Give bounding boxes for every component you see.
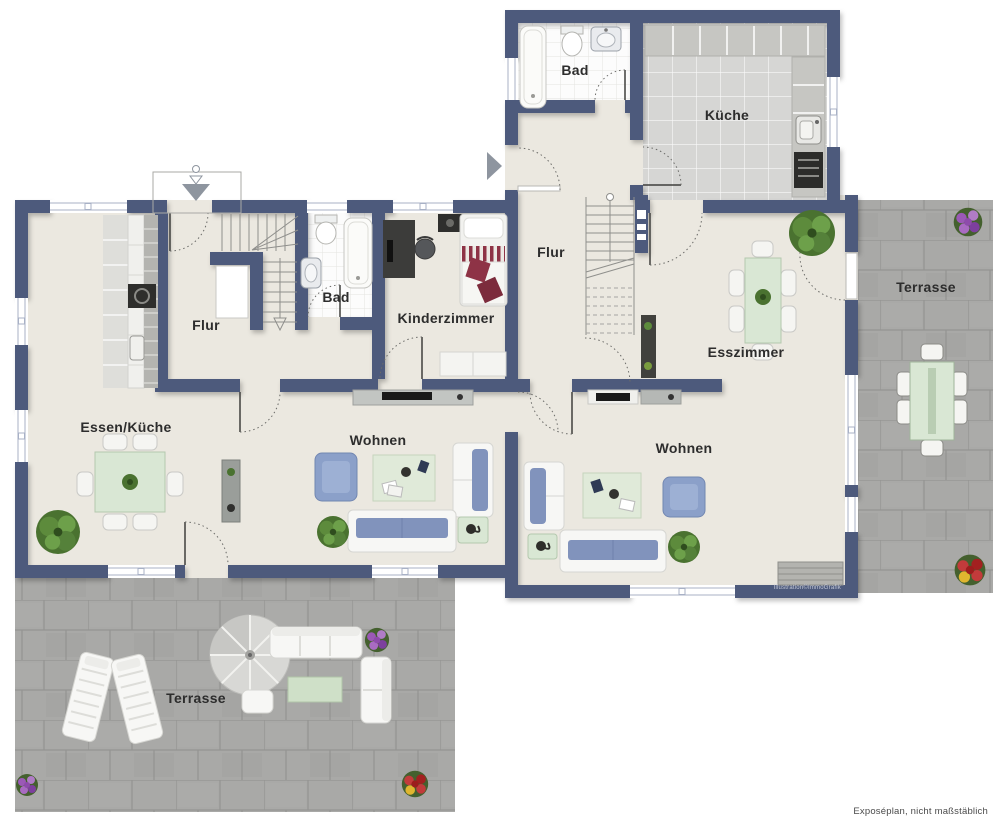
- rug: [583, 473, 641, 518]
- rug: [373, 455, 435, 501]
- sofa: [560, 530, 666, 572]
- monitor-icon: [387, 240, 393, 262]
- window: [393, 200, 453, 213]
- floorplan-drawing: [0, 0, 1000, 833]
- window: [505, 58, 518, 100]
- potted-plant: [317, 516, 349, 548]
- flower-pot: [402, 771, 428, 797]
- floorplan-page: BadKücheFlurTerrasseEsszimmerFlurBadKind…: [0, 0, 1000, 833]
- flower-pot: [955, 555, 986, 586]
- stair-shelf-niche: [637, 224, 646, 230]
- sofa: [453, 443, 493, 517]
- window: [15, 410, 28, 462]
- stove: [794, 152, 823, 188]
- window: [827, 77, 840, 147]
- sofa: [524, 462, 564, 530]
- bed: [460, 214, 507, 306]
- side-table-with-cat: [458, 517, 488, 543]
- stool: [242, 690, 273, 713]
- terrace-steps: [778, 562, 843, 585]
- potted-plant: [789, 210, 835, 256]
- window: [845, 375, 858, 485]
- flower-pot: [16, 774, 38, 796]
- tv-icon: [382, 392, 432, 400]
- oven: [128, 284, 156, 308]
- flower-pot: [954, 208, 983, 237]
- window: [630, 585, 735, 598]
- sofa: [348, 510, 456, 552]
- entrance-arrow-right-icon: [487, 152, 502, 180]
- kitchen-sink: [130, 336, 144, 360]
- tv-icon: [596, 393, 630, 401]
- window: [15, 298, 28, 345]
- closet-under-stairs: [216, 266, 248, 318]
- desk-chair: [415, 239, 435, 259]
- stair-shelf-niche: [637, 234, 646, 240]
- entrance-arrow-down-icon: [182, 184, 210, 201]
- footer-note: Exposéplan, nicht maßstäblich: [853, 806, 988, 817]
- side-table-with-cat: [528, 534, 557, 559]
- illustration-credit: Illustration©ImmoGrafik: [737, 585, 841, 591]
- window: [845, 497, 858, 532]
- stair-newel-icon: [607, 194, 614, 201]
- window: [50, 200, 127, 213]
- window: [307, 200, 347, 213]
- potted-plant: [668, 531, 700, 563]
- window: [372, 565, 438, 578]
- potted-plant: [36, 510, 80, 554]
- flower-pot: [365, 628, 389, 652]
- media-cabinet: [641, 390, 681, 404]
- kitchen-left-counter: [103, 215, 158, 388]
- coffee-table: [288, 677, 342, 702]
- window: [108, 565, 175, 578]
- stair-shelf-niche: [637, 210, 646, 219]
